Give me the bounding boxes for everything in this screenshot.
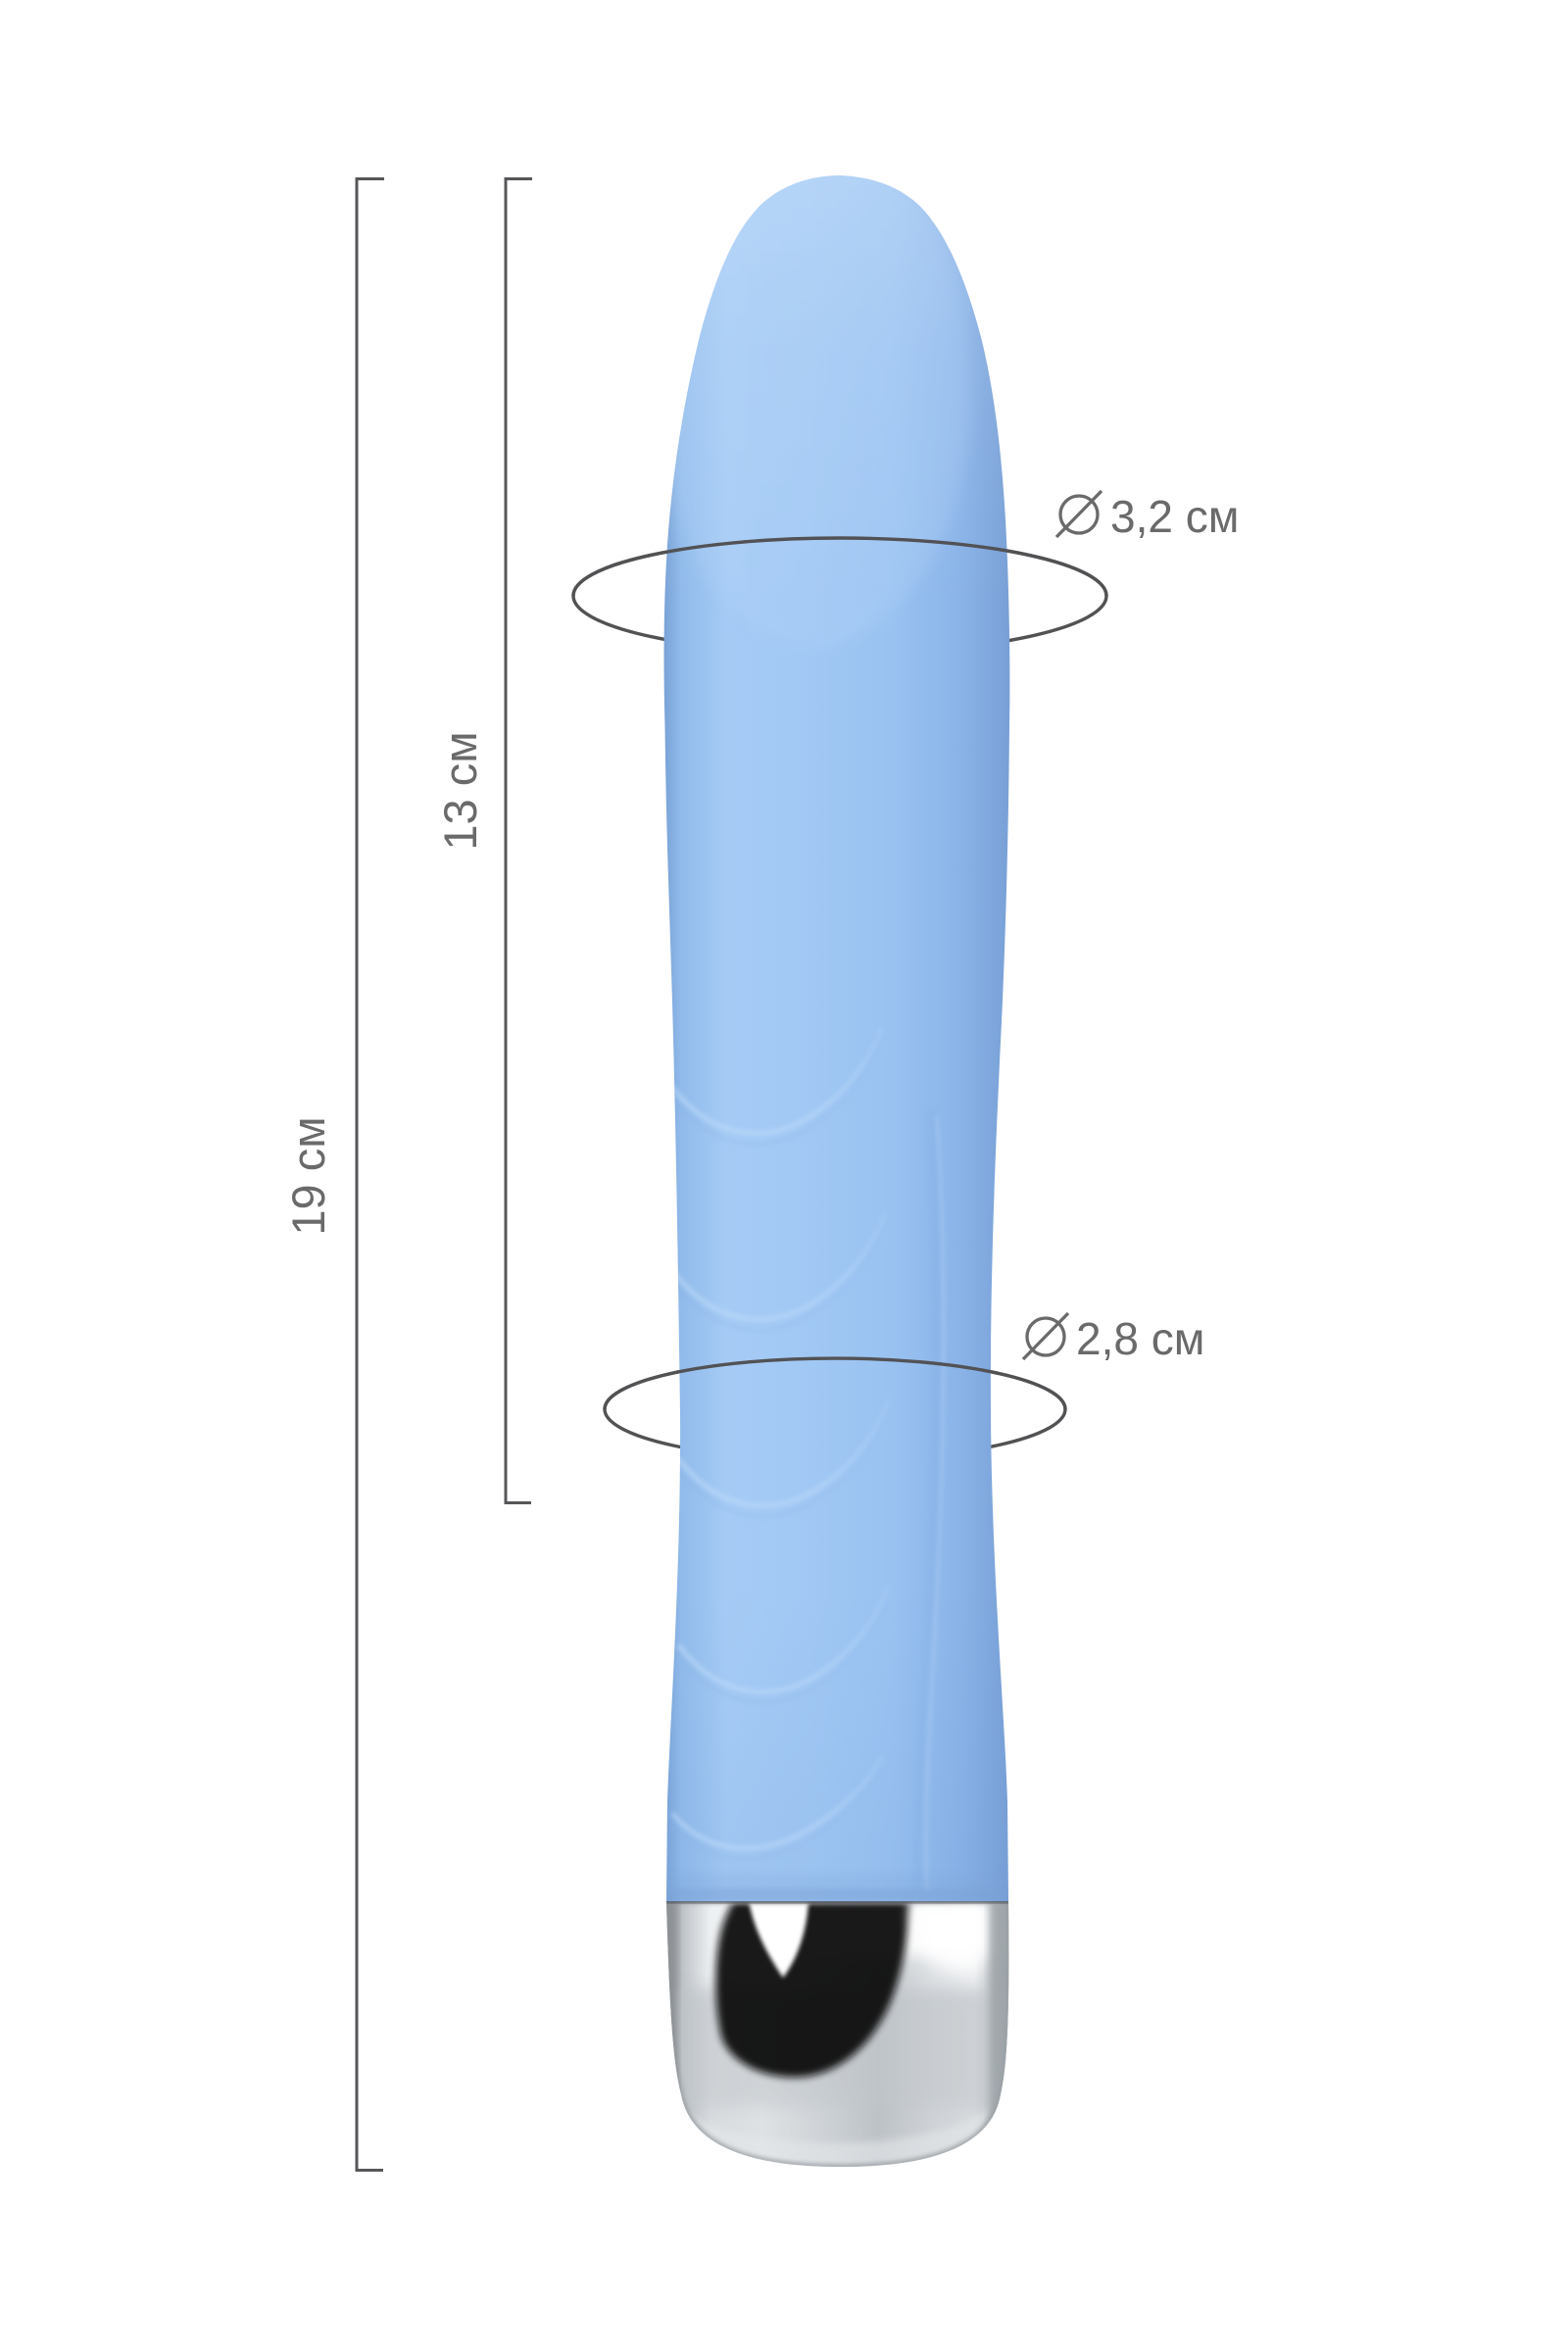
svg-text:19 см: 19 см (282, 1116, 334, 1235)
svg-text:13 см: 13 см (434, 731, 486, 850)
svg-text:3,2 см: 3,2 см (1110, 491, 1239, 542)
svg-text:2,8 см: 2,8 см (1076, 1313, 1204, 1364)
